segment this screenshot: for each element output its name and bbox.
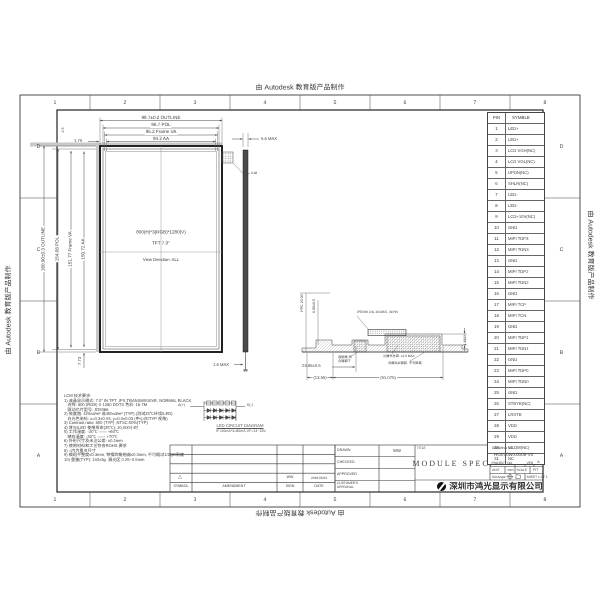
pin-table-row: 18MIPI TCN <box>488 311 544 322</box>
zone-column-top: 5 <box>334 100 337 106</box>
unit-label: UNIT <box>492 469 499 472</box>
pin-symbol: MIPI TDN3 <box>506 245 544 255</box>
revision-sign: WW <box>287 476 294 480</box>
pin-table-row: 19GND <box>488 322 544 333</box>
checked-label: CHECKED <box>337 461 355 465</box>
zone-row-right: C <box>560 247 564 253</box>
pin-number: 24 <box>488 377 506 387</box>
zone-column-bottom: 1 <box>54 497 57 503</box>
ver-label: VER <box>527 462 534 465</box>
pin-number: 7 <box>488 190 506 200</box>
pin-symbol: MIPI TDP0 <box>506 366 544 376</box>
pin-table-row: 5UPDN(NC) <box>488 168 544 179</box>
tape-note: 背面贴双面胶, 不可撕离 <box>388 362 422 365</box>
pin-symbol: MIPI TDN2 <box>506 278 544 288</box>
zone-row-right: A <box>560 453 563 459</box>
drawn-label: DRAWN <box>337 449 350 453</box>
pin-number: 18 <box>488 311 506 321</box>
pin-number: 20 <box>488 333 506 343</box>
dim-aa-width: 94.2 AA <box>152 137 170 142</box>
symbol-col-header: SYMBLE <box>506 113 544 123</box>
dim-fpc-length: FPC 20.00 <box>301 294 305 311</box>
zone-column-bottom: 2 <box>124 497 127 503</box>
dim-bottom-offset: 7.73 <box>78 357 82 365</box>
pin-table-row: 27LRSTB <box>488 410 544 421</box>
pin-symbol: LED+ <box>506 124 544 134</box>
zone-row-left: A <box>37 453 40 459</box>
unit-value: mm <box>508 469 514 473</box>
pin-symbol: SHLR(NC) <box>506 179 544 189</box>
pin-table-row: 13GND <box>488 256 544 267</box>
dim-outline-height: 160.90±0.3 OUTLINE <box>42 226 47 272</box>
zone-column-top: 8 <box>544 100 547 106</box>
dim-thickness-max: 5.6 MAX <box>261 137 277 141</box>
pin-table-row: 4LCD VGL(NC) <box>488 157 544 168</box>
pin-symbol: LCD+10V(NC) <box>506 212 544 222</box>
pin-symbol: LCD VGL(NC) <box>506 157 544 167</box>
pin-table-row: 6SHLR(NC) <box>488 179 544 190</box>
note-line: 10) 重量(TYP): 143±3g 漏光区 0.25~0.5mm <box>64 458 191 463</box>
drawn-value: WW <box>393 449 401 453</box>
panel-resolution-label: 800(H)*3(RGB)*1280(V) <box>136 231 186 236</box>
pin-table-row: 11MIPI TDP3 <box>488 234 544 245</box>
pin-symbol: GND <box>506 289 544 299</box>
dim-frame-va-height: 151.77 Frame VA <box>69 230 74 268</box>
pin-symbol: LED+ <box>506 135 544 145</box>
zone-column-bottom: 4 <box>264 497 267 503</box>
pin-table-row: 29VDD <box>488 432 544 443</box>
drawing-title: MODULE SPEC. <box>412 460 493 468</box>
pin-number: 15 <box>488 278 506 288</box>
pin-number: 14 <box>488 267 506 277</box>
zone-row-left: D <box>37 144 41 150</box>
pin-table-row: 2LED+ <box>488 135 544 146</box>
pin-table-row: 10GND <box>488 223 544 234</box>
connector-side-note: 连接器 扣合面朝下 <box>338 356 354 363</box>
dim-stiffener-max: 1 MAX <box>464 335 468 346</box>
pin-number: 13 <box>488 256 506 266</box>
sheet-label: SHEET 1 OF 1 <box>527 476 548 479</box>
pin-number: 26 <box>488 399 506 409</box>
pin-symbol: VDD <box>506 432 544 442</box>
pin-symbol: GND <box>506 388 544 398</box>
dim-pol-height: 154.08 POL <box>56 236 61 263</box>
zone-column-top: 6 <box>404 100 407 106</box>
pin-symbol: MIPI TCP <box>506 300 544 310</box>
led-circuit-title: LED CIRCUIT DIAGRAM <box>217 424 264 428</box>
zone-row-left: B <box>37 350 40 356</box>
autodesk-banner-bottom: 由 Autodesk 教育版产品制作 <box>255 509 344 516</box>
pin-table-row: 3LCD VGH(NC) <box>488 146 544 157</box>
pin-symbol: MIPI TDP3 <box>506 234 544 244</box>
pin-table-row: 26STBYB(NC) <box>488 399 544 410</box>
pin-number: 17 <box>488 300 506 310</box>
zone-column-top: 7 <box>474 100 477 106</box>
pin-symbol: MIPI TDN1 <box>506 344 544 354</box>
pin-table-row: 28VDD <box>488 421 544 432</box>
dim-pol-width: 96.7 POL <box>150 123 171 128</box>
pin-number: 6 <box>488 179 506 189</box>
pin-table-row: 8LED- <box>488 201 544 212</box>
zone-column-bottom: 7 <box>474 497 477 503</box>
pin-table-row: 14MIPI TDP2 <box>488 267 544 278</box>
pin-symbol: LRSTB <box>506 410 544 420</box>
pin-table-header: PIN SYMBLE <box>488 113 544 124</box>
customer-approval-label: CUSTOMER'S APPROVAL <box>337 482 375 489</box>
projection-label: 3rd Angle <box>492 476 505 479</box>
dim-outline-width: 98.7±0.2 OUTLINE <box>140 116 181 121</box>
engineering-drawing-sheet: 由 Autodesk 教育版产品制作 由 Autodesk 教育版产品制作 由 … <box>0 0 600 600</box>
pin-symbol: GND <box>506 322 544 332</box>
approved-label: APPROVED <box>337 473 357 477</box>
dim-top-offset: 2.5 <box>62 128 66 133</box>
pin-number: 27 <box>488 410 506 420</box>
dim-fpc-right: (51.075) <box>379 376 397 380</box>
autodesk-banner-left: 由 Autodesk 教育版产品制作 <box>6 265 13 354</box>
pin-table-row: 25GND <box>488 388 544 399</box>
zone-column-bottom: 5 <box>334 497 337 503</box>
connector-part-label: IPEX08 2.0L 20198.5, 31PIN <box>357 311 398 314</box>
company-logo-icon <box>437 482 446 491</box>
led-circuit-formula: IF=20mA*4=80mA,VF=14~18V <box>216 430 266 434</box>
pin-symbol: LCD VGH(NC) <box>506 146 544 156</box>
pin-number: 12 <box>488 245 506 255</box>
dim-connector-offset: 23.65±0.5 <box>302 364 321 368</box>
pin-table-row: 20MIPI TDP1 <box>488 333 544 344</box>
pin-number: 29 <box>488 432 506 442</box>
pin-table-row: 22GND <box>488 355 544 366</box>
pin-table-row: 7LED- <box>488 190 544 201</box>
technical-notes: LCM 技术要求:1) 液晶显示模式: 7.0" IN TFT ,IPS,TRA… <box>64 394 191 462</box>
dim-fpc-left: (13.55) <box>312 376 327 380</box>
pin-number: 4 <box>488 157 506 167</box>
pin-number: 1 <box>488 124 506 134</box>
pin-symbol: MIPI TCN <box>506 311 544 321</box>
pin-table-row: 1LED+ <box>488 124 544 135</box>
pin-assignment-table: PIN SYMBLE 1LED+2LED+3LCD VGH(NC)4LCD VG… <box>487 112 545 465</box>
rev-col-amendment: AMENDMENT <box>222 485 245 489</box>
pin-symbol: GND <box>506 355 544 365</box>
title-label: TITLE <box>417 447 426 450</box>
pin-number: 3 <box>488 146 506 156</box>
ver-value: A <box>537 461 539 465</box>
autodesk-banner-top: 由 Autodesk 教育版产品制作 <box>255 85 344 92</box>
pin-symbol: MIPI TDN0 <box>506 377 544 387</box>
scale-label: SCALE <box>517 469 527 472</box>
dim-frame-va-width: 95.2 Frame VA <box>145 130 178 135</box>
component-height-note: 元器件总高: ≤1.5 MAX <box>383 355 415 358</box>
pin-number: 9 <box>488 212 506 222</box>
rev-col-symbol: SYMBOL <box>174 485 189 489</box>
pin-number: 25 <box>488 388 506 398</box>
pin-table-row: 24MIPI TDN0 <box>488 377 544 388</box>
led-cathode-label: K(-) <box>247 404 253 408</box>
pin-number: 28 <box>488 421 506 431</box>
revision-triangle-icon: △ <box>178 475 182 480</box>
zone-column-top: 4 <box>264 100 267 106</box>
zone-column-bottom: 3 <box>194 497 197 503</box>
autodesk-banner-right: 由 Autodesk 教育版产品制作 <box>587 210 594 299</box>
pin-number: 22 <box>488 355 506 365</box>
zone-column-bottom: 8 <box>544 497 547 503</box>
pin-symbol: UPDN(NC) <box>506 168 544 178</box>
pin-symbol: VDD <box>506 421 544 431</box>
pin-symbol: MIPI TDP1 <box>506 333 544 343</box>
dim-aa-height: 150.72 AA <box>82 237 87 260</box>
zone-column-top: 2 <box>124 100 127 106</box>
pin-symbol: GND <box>506 256 544 266</box>
dim-fpc-thickness: 1.6 MAX <box>213 362 229 366</box>
pin-number: 10 <box>488 223 506 233</box>
pin-symbol: GND <box>506 223 544 233</box>
zone-row-right: B <box>560 350 563 356</box>
rev-col-sign: SIGN <box>286 485 295 489</box>
pin-table-row: 16GND <box>488 289 544 300</box>
project-no-label: PROJECT NO. <box>492 462 513 465</box>
pin-number: 16 <box>488 289 506 299</box>
drawing-no-label: DRAWING NO. <box>492 447 514 450</box>
pin-table-row: 12MIPI TDN3 <box>488 245 544 256</box>
pin-number: 11 <box>488 234 506 244</box>
pin-symbol: STBYB(NC) <box>506 399 544 409</box>
pin-table-row: 9LCD+10V(NC) <box>488 212 544 223</box>
pin-table-row: 21MIPI TDN1 <box>488 344 544 355</box>
zone-row-right: D <box>560 144 564 150</box>
rev-col-date: DATE <box>314 485 323 489</box>
zone-column-top: 3 <box>194 100 197 106</box>
pin-number: 21 <box>488 344 506 354</box>
pin-col-header: PIN <box>488 113 506 123</box>
panel-size-label: TFT 7.0" <box>152 241 170 246</box>
view-direction-label: View Direction: ALL <box>143 258 179 262</box>
pin-number: 19 <box>488 322 506 332</box>
pin-table-row: 15MIPI TDN2 <box>488 278 544 289</box>
pin-number: 23 <box>488 366 506 376</box>
pin-symbol: MIPI TDP2 <box>506 267 544 277</box>
pin-symbol: LED- <box>506 190 544 200</box>
pin-symbol: LED- <box>506 201 544 211</box>
pin-number: 8 <box>488 201 506 211</box>
pin-table-row: 17MIPI TCP <box>488 300 544 311</box>
scale-value: FIT <box>533 469 538 473</box>
company-name: 深圳市鸿光显示有限公司 <box>449 482 543 491</box>
corner-pad-label: 0.98 <box>251 172 257 175</box>
pin-number: 2 <box>488 135 506 145</box>
dim-connector-height: 6.85±0.5 <box>313 299 317 313</box>
drawing-no-value: HG070WX0008-V0 <box>494 453 533 458</box>
pin-table-row: 23MIPI TDP0 <box>488 366 544 377</box>
pin-number: 5 <box>488 168 506 178</box>
zone-column-bottom: 6 <box>404 497 407 503</box>
revision-date: 2018.03.03 <box>311 477 327 480</box>
zone-column-top: 1 <box>54 100 57 106</box>
dim-left-offset: 1.75 <box>74 139 82 143</box>
